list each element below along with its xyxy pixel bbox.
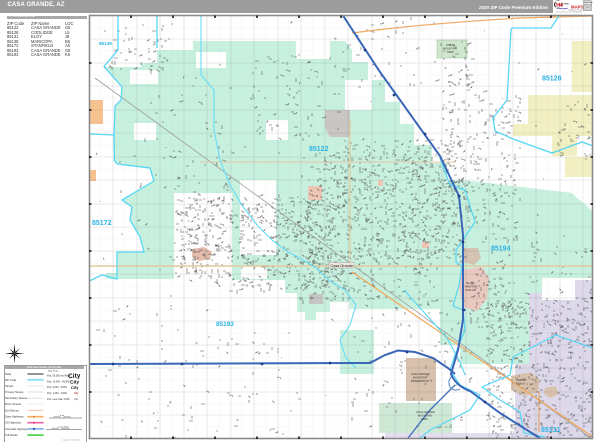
svg-text:City: City [68, 372, 81, 380]
svg-text:85128: 85128 [542, 76, 562, 83]
svg-text:City: City [71, 385, 80, 391]
svg-text:85138: 85138 [99, 41, 112, 46]
svg-text:Casa Grande: Casa Grande [331, 264, 354, 268]
svg-text:85194: 85194 [491, 246, 511, 253]
svg-text:MOUNTAIN: MOUNTAIN [443, 47, 457, 51]
svg-text:RESERVATION: RESERVATION [411, 379, 429, 383]
svg-text:Copyright MapSafari: Copyright MapSafari [62, 439, 81, 442]
svg-text:Toll Roads: Toll Roads [5, 433, 18, 437]
svg-text:MOUNTAIN: MOUNTAIN [418, 414, 432, 418]
svg-text:RANCH: RANCH [516, 383, 525, 386]
svg-text:ZIP Code: ZIP Code [5, 378, 17, 382]
svg-text:Pop: 5,000 - 9,999: Pop: 5,000 - 9,999 [47, 386, 67, 389]
svg-text:Pop: Less than 1,000: Pop: Less than 1,000 [47, 398, 70, 401]
svg-text:Interstate Highways: Interstate Highways [5, 427, 29, 431]
svg-text:Minor Streets: Minor Streets [5, 402, 22, 406]
svg-text:CASA GRANDE: CASA GRANDE [416, 410, 435, 414]
svg-text:Exit Ramps: Exit Ramps [5, 408, 19, 412]
svg-text:85131: 85131 [541, 427, 561, 434]
svg-text:CASA GRANDE: CASA GRANDE [411, 372, 430, 376]
svg-text:City: City [74, 398, 79, 401]
svg-text:Pop: 1,000 - 4,999: Pop: 1,000 - 4,999 [47, 392, 67, 395]
svg-text:CASA GR: CASA GR [465, 289, 476, 292]
svg-text:85122: 85122 [309, 146, 329, 153]
svg-text:US Highways: US Highways [5, 421, 22, 425]
svg-text:State Highways: State Highways [5, 415, 24, 419]
svg-text:PARK: PARK [421, 417, 428, 421]
svg-text:85172: 85172 [92, 220, 112, 227]
svg-text:Pop: 10,000 - 49,999: Pop: 10,000 - 49,999 [47, 380, 70, 383]
svg-text:Map Scale: Map Scale [48, 371, 59, 373]
svg-text:NORTH: NORTH [446, 43, 455, 47]
svg-text:Streets: Streets [5, 384, 14, 388]
svg-text:City: City [74, 392, 79, 395]
svg-text:Secondary Streets: Secondary Streets [5, 396, 28, 400]
svg-text:PARK: PARK [447, 50, 454, 54]
svg-text:85193: 85193 [216, 321, 234, 328]
svg-text:MOUNTAIN: MOUNTAIN [413, 376, 427, 380]
svg-text:Primary Streets: Primary Streets [5, 390, 24, 394]
svg-text:State: State [5, 372, 12, 376]
